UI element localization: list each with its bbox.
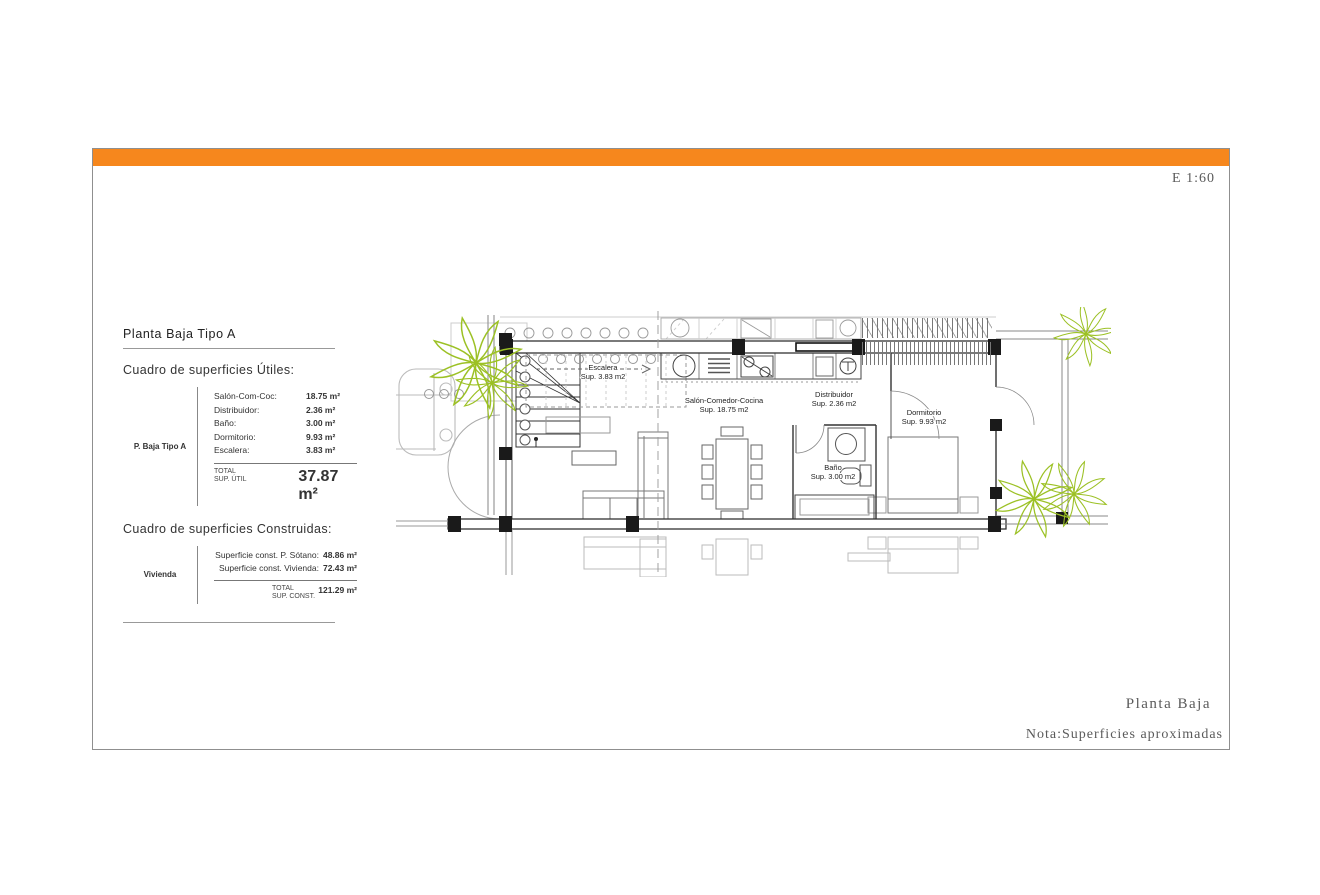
total-value: 121.29 m²: [318, 585, 357, 602]
bed: [868, 437, 978, 513]
useful-total-row: TOTALSUP. ÚTIL 37.87 m²: [214, 463, 357, 504]
room-area-escalera: Sup. 3.83 m2: [581, 372, 626, 381]
total-value: 37.87 m²: [298, 468, 357, 504]
area-row: Distribuidor:2.36 m²: [214, 404, 357, 418]
room-label-bano: Baño: [824, 463, 842, 472]
built-table: Vivienda Superficie const. P. Sótano:48.…: [123, 546, 357, 604]
sink-icon: [673, 355, 695, 377]
panel-title: Planta Baja Tipo A: [123, 327, 371, 341]
area-label: Escalera:: [214, 444, 306, 458]
scale-label: E 1:60: [1172, 171, 1215, 187]
dining-table: [702, 427, 762, 520]
total-sublabel: SUP. CONST.: [272, 593, 315, 600]
room-label-salon: Salón-Comedor-Cocina: [685, 396, 764, 405]
area-value: 3.00 m²: [306, 417, 335, 431]
sofa: [546, 417, 668, 522]
useful-row-header: P. Baja Tipo A: [123, 387, 197, 506]
floor-plan: Escalera Sup. 3.83 m2 Salón-Comedor-Coci…: [396, 307, 1111, 577]
divider-line: [123, 622, 335, 623]
area-row: Escalera:3.83 m²: [214, 444, 357, 458]
plan-caption: Planta Baja: [1126, 696, 1211, 713]
area-row: Superficie const. P. Sótano:48.86 m²: [214, 549, 357, 562]
room-area-dormitorio: Sup. 9.93 m2: [902, 417, 947, 426]
area-value: 9.93 m²: [306, 431, 335, 445]
area-row: Baño:3.00 m²: [214, 417, 357, 431]
room-label-dormitorio: Dormitorio: [907, 408, 942, 417]
kitchen-counter: [661, 353, 861, 382]
area-label: Baño:: [214, 417, 306, 431]
room-label-escalera: Escalera: [588, 363, 618, 372]
nightstand: [868, 497, 886, 513]
washbasin-icon: [828, 428, 865, 461]
total-label: TOTAL: [272, 585, 294, 592]
plant-icon: [1029, 449, 1111, 539]
total-label: TOTAL: [214, 468, 236, 475]
room-area-salon: Sup. 18.75 m2: [700, 405, 749, 414]
room-label-distribuidor: Distribuidor: [815, 390, 853, 399]
nightstand: [960, 497, 978, 513]
area-value: 18.75 m²: [306, 390, 340, 404]
area-value: 2.36 m²: [306, 404, 335, 418]
accent-bar: [93, 149, 1229, 166]
built-total-row: TOTALSUP. CONST. 121.29 m²: [214, 580, 357, 602]
area-value: 3.83 m²: [306, 444, 335, 458]
area-value: 72.43 m²: [323, 562, 357, 575]
area-row: Dormitorio:9.93 m²: [214, 431, 357, 445]
area-label: Superficie const. Vivienda:: [219, 562, 319, 575]
room-area-distribuidor: Sup. 2.36 m2: [812, 399, 857, 408]
plant-icon: [1051, 307, 1111, 369]
room-area-bano: Sup. 3.00 m2: [811, 472, 856, 481]
built-heading: Cuadro de superficies Construidas:: [123, 522, 371, 536]
area-label: Distribuidor:: [214, 404, 306, 418]
area-label: Dormitorio:: [214, 431, 306, 445]
area-row: Superficie const. Vivienda:72.43 m²: [214, 562, 357, 575]
door-arc: [796, 425, 824, 453]
useful-table: P. Baja Tipo A Salón-Com-Coc:18.75 m² Di…: [123, 387, 357, 506]
plant-icon: [996, 461, 1072, 537]
area-row: Salón-Com-Coc:18.75 m²: [214, 390, 357, 404]
drawing-sheet: E 1:60 Planta Baja Tipo A Cuadro de supe…: [92, 148, 1230, 750]
divider-line: [123, 348, 335, 349]
built-row-header: Vivienda: [123, 546, 197, 604]
total-sublabel: SUP. ÚTIL: [214, 476, 247, 483]
toilet-icon: [860, 465, 871, 486]
area-value: 48.86 m²: [323, 549, 357, 562]
plan-note: Nota:Superficies aproximadas: [1026, 727, 1223, 743]
surface-panel: Planta Baja Tipo A Cuadro de superficies…: [123, 327, 371, 637]
car-outline: [396, 369, 455, 455]
adjacent-unit-furniture: [584, 537, 978, 577]
floor-plan-svg: Escalera Sup. 3.83 m2 Salón-Comedor-Coci…: [396, 307, 1111, 577]
useful-heading: Cuadro de superficies Útiles:: [123, 363, 371, 377]
area-label: Superficie const. P. Sótano:: [215, 549, 319, 562]
area-label: Salón-Com-Coc:: [214, 390, 306, 404]
pergola-hatch: [862, 318, 992, 338]
louver-hatch: [862, 342, 992, 365]
coffee-table: [572, 451, 616, 465]
